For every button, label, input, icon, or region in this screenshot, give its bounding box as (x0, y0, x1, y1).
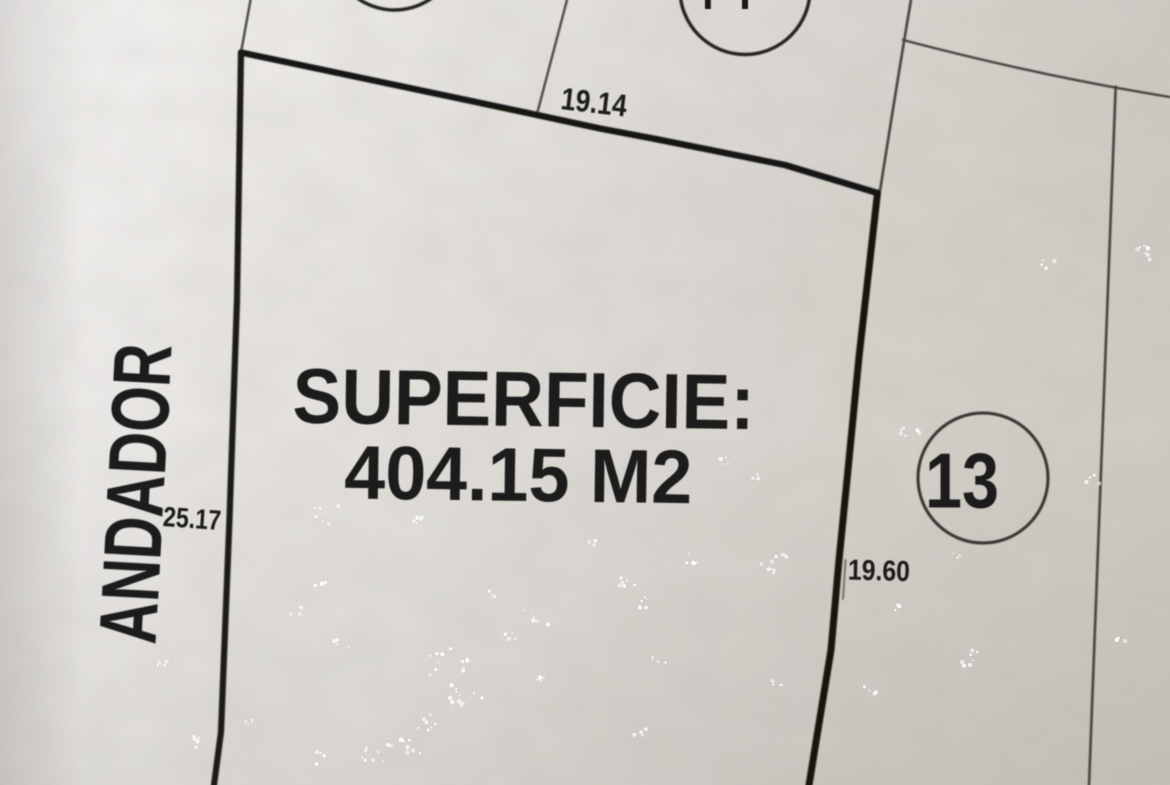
svg-text:ANDADOR: ANDADOR (82, 341, 189, 646)
svg-text:404.15 M2: 404.15 M2 (344, 430, 693, 520)
svg-text:19.14: 19.14 (559, 80, 629, 123)
svg-text:13: 13 (925, 437, 999, 525)
svg-text:19.60: 19.60 (848, 555, 911, 589)
